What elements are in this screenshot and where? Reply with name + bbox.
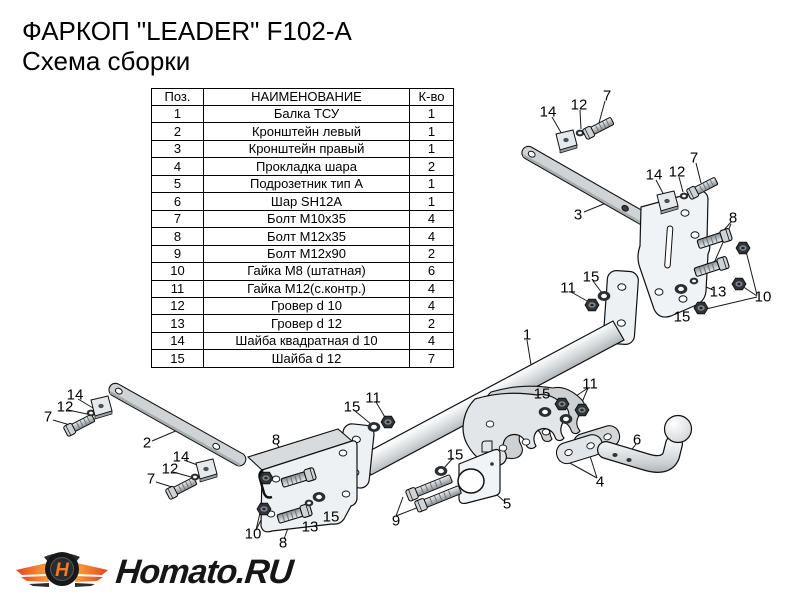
logo: H Homato.RU xyxy=(14,544,292,594)
winged-h-icon: H xyxy=(14,544,110,594)
leader-lines xyxy=(53,101,757,539)
assembly-diagram xyxy=(0,0,800,600)
logo-text: Homato.RU xyxy=(114,553,294,592)
logo-letter: H xyxy=(55,560,70,581)
left-bracket xyxy=(107,381,357,532)
